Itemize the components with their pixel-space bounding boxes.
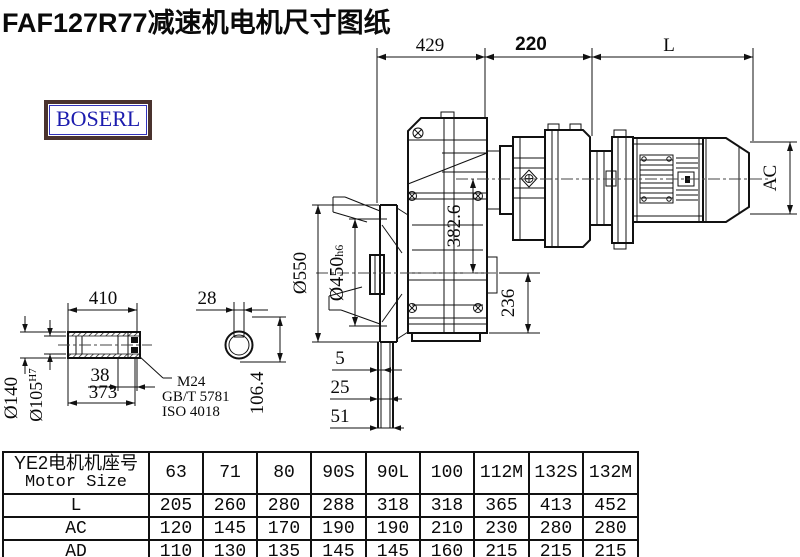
dim-label-ac: AC <box>760 165 781 191</box>
table-row-AC: AC 120 145 170 190 190 210 230 280 280 <box>3 517 638 540</box>
std-iso-callout: ISO 4018 <box>162 404 220 420</box>
dim-label-105: Ø105 <box>26 382 46 422</box>
technical-drawing: 429 220 L <box>0 0 800 452</box>
cell-AD-90S: 145 <box>311 540 366 557</box>
cell-AD-132M: 215 <box>583 540 638 557</box>
mounting-leg <box>378 342 393 428</box>
cell-L-132S: 413 <box>529 494 583 517</box>
dim-label-140: Ø140 <box>1 377 22 419</box>
motor <box>633 138 749 222</box>
dim-label-450-tol: h6 <box>332 245 346 257</box>
cell-AD-132S: 215 <box>529 540 583 557</box>
cell-L-71: 260 <box>203 494 257 517</box>
row-label-AC: AC <box>3 517 149 540</box>
dim-label-450: Ø450 <box>326 257 348 301</box>
std-gbt-callout: GB/T 5781 <box>162 389 230 405</box>
cell-L-90L: 318 <box>366 494 420 517</box>
drawing-sheet: FAF127R77减速机电机尺寸图纸 BOSERL 429 220 L <box>0 0 800 557</box>
dim-label-382-6: 382.6 <box>444 205 465 248</box>
dim-label-25: 25 <box>331 377 350 398</box>
cell-AC-90L: 190 <box>366 517 420 540</box>
cell-AD-112M: 215 <box>474 540 529 557</box>
cell-AC-132S: 280 <box>529 517 583 540</box>
cell-AC-112M: 230 <box>474 517 529 540</box>
cell-AC-71: 145 <box>203 517 257 540</box>
dim-label-28: 28 <box>198 288 217 309</box>
dim-label-106-4: 106.4 <box>247 371 268 414</box>
dim-label-51: 51 <box>331 406 350 427</box>
cell-AD-90L: 145 <box>366 540 420 557</box>
col-71: 71 <box>203 452 257 494</box>
col-90L: 90L <box>366 452 420 494</box>
row-label-L: L <box>3 494 149 517</box>
dim-label-105-tol: H7 <box>27 368 39 382</box>
table-row-AD: AD 110 130 135 145 145 160 215 215 215 <box>3 540 638 557</box>
col-112M: 112M <box>474 452 529 494</box>
cell-L-132M: 452 <box>583 494 638 517</box>
cell-AC-90S: 190 <box>311 517 366 540</box>
cell-L-90S: 288 <box>311 494 366 517</box>
cell-AD-100: 160 <box>420 540 474 557</box>
col-132S: 132S <box>529 452 583 494</box>
row-label-AD: AD <box>3 540 149 557</box>
dim-label-410: 410 <box>89 288 118 309</box>
motor-size-label-en: Motor Size <box>4 473 148 492</box>
col-80: 80 <box>257 452 311 494</box>
col-132M: 132M <box>583 452 638 494</box>
cell-L-100: 318 <box>420 494 474 517</box>
cell-AC-100: 210 <box>420 517 474 540</box>
dim-label-373: 373 <box>89 382 118 403</box>
shaft-detail: 410 Ø140 Ø105H7 38 <box>1 288 230 422</box>
dim-label-220: 220 <box>515 34 547 55</box>
col-90S: 90S <box>311 452 366 494</box>
dim-label-429: 429 <box>416 35 445 56</box>
dim-label-236: 236 <box>498 289 519 318</box>
svg-text:Ø450h6: Ø450h6 <box>326 245 348 301</box>
table-header-row: YE2电机机座号 Motor Size 63 71 80 90S 90L 100… <box>3 452 638 494</box>
dim-label-L: L <box>663 35 675 56</box>
cell-AD-63: 110 <box>149 540 203 557</box>
cell-L-80: 280 <box>257 494 311 517</box>
cell-L-112M: 365 <box>474 494 529 517</box>
motor-size-table: YE2电机机座号 Motor Size 63 71 80 90S 90L 100… <box>2 451 639 557</box>
dim-label-5: 5 <box>335 348 345 369</box>
table-row-L: L 205 260 280 288 318 318 365 413 452 <box>3 494 638 517</box>
col-63: 63 <box>149 452 203 494</box>
thread-callout: M24 <box>177 374 206 390</box>
table-header-motor-size: YE2电机机座号 Motor Size <box>3 452 149 494</box>
cell-AC-80: 170 <box>257 517 311 540</box>
input-gear-unit <box>487 124 633 249</box>
cell-AC-63: 120 <box>149 517 203 540</box>
col-100: 100 <box>420 452 474 494</box>
cell-AD-80: 135 <box>257 540 311 557</box>
dim-ac: AC <box>750 142 797 214</box>
cell-AD-71: 130 <box>203 540 257 557</box>
dim-label-550: Ø550 <box>290 252 311 294</box>
svg-text:Ø105H7: Ø105H7 <box>26 368 46 422</box>
cell-AC-132M: 280 <box>583 517 638 540</box>
cell-L-63: 205 <box>149 494 203 517</box>
motor-size-label-cn: YE2电机机座号 <box>4 454 148 473</box>
